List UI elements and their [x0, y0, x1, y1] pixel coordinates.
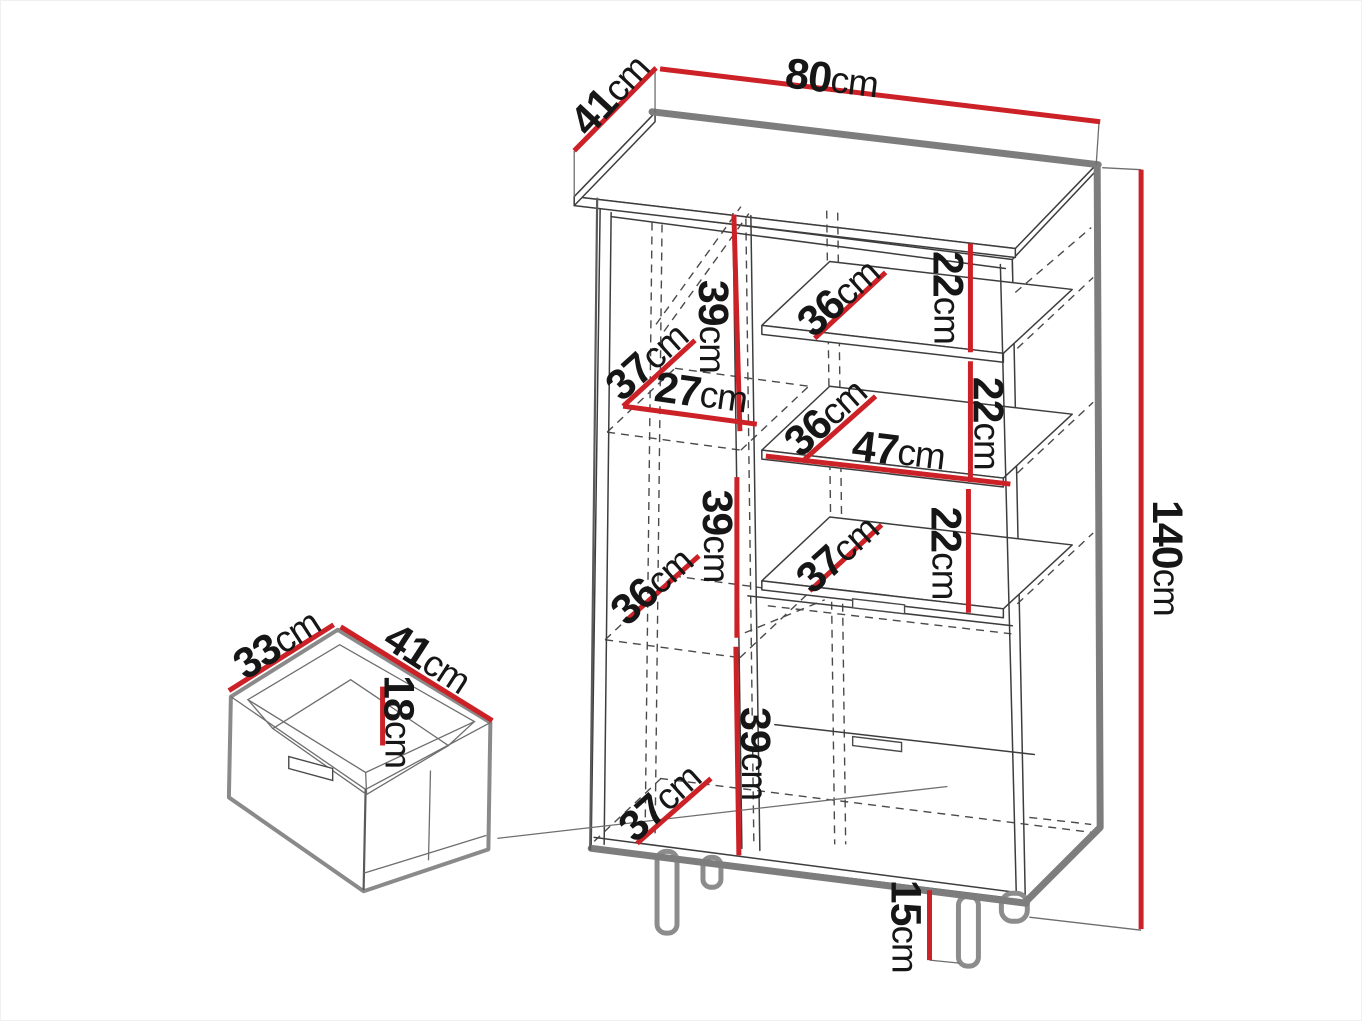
dim-label-22-a: 22cm: [923, 251, 971, 344]
dim-line-width-80: [660, 69, 1100, 122]
diagram-canvas: 80cm 41cm 140cm 39cm 37cm 27cm 36cm 22cm…: [1, 1, 1361, 1020]
furniture-dimension-diagram: 80cm 41cm 140cm 39cm 37cm 27cm 36cm 22cm…: [0, 0, 1362, 1021]
drawer-inset-drawing: 33cm 41cm 18cm: [225, 598, 493, 891]
dim-label-15-leg: 15cm: [882, 880, 930, 973]
main-cabinet-drawing: 80cm 41cm 140cm 39cm 37cm 27cm 36cm 22cm…: [497, 44, 1191, 972]
leg-front-right: [958, 896, 978, 966]
dim-label-22-c: 22cm: [921, 506, 969, 599]
cabinet-right-side-face: [1012, 170, 1100, 902]
dim-label-drawer-18: 18cm: [375, 675, 423, 768]
dim-label-39-mid: 39cm: [693, 489, 741, 582]
dim-label-width-80: 80cm: [783, 49, 881, 108]
leg-front-left: [657, 851, 677, 933]
dim-label-39-top: 39cm: [689, 280, 737, 373]
dim-label-39-bottom: 39cm: [731, 707, 779, 800]
dim-label-22-b: 22cm: [963, 377, 1011, 470]
dim-label-height-140: 140cm: [1143, 500, 1191, 616]
